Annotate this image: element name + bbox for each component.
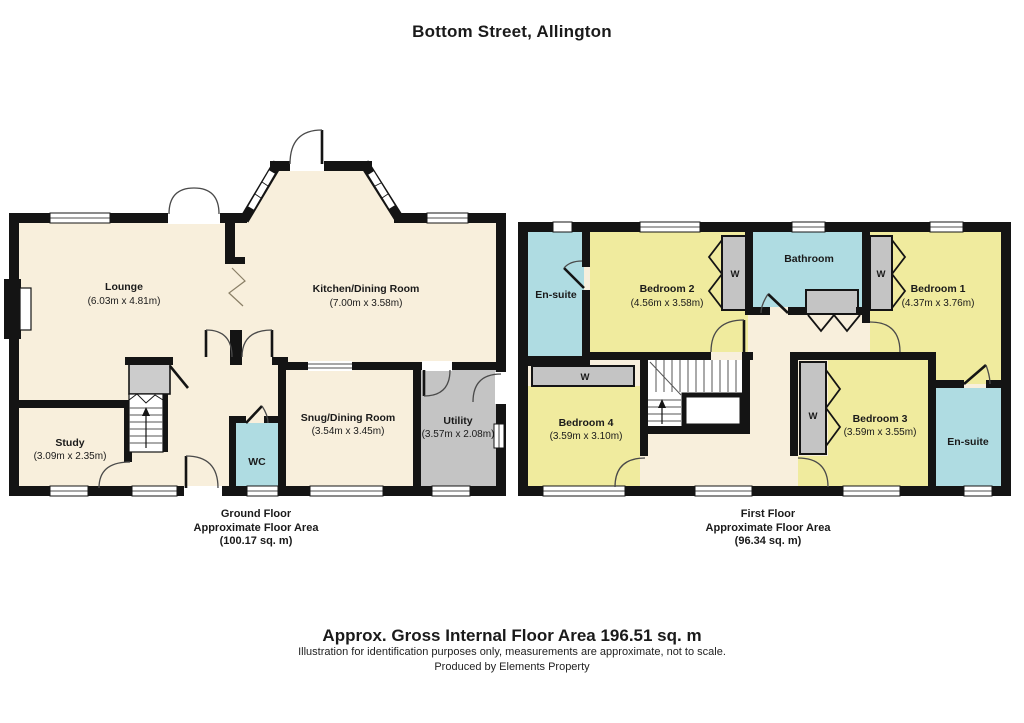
room-label-bedroom2: Bedroom 2: [640, 283, 695, 295]
room-dims-lounge: (6.03m x 4.81m): [88, 296, 161, 307]
wall: [229, 416, 236, 486]
wardrobe-label: W: [809, 411, 818, 422]
wall: [790, 352, 798, 456]
wall: [278, 362, 286, 486]
exterior-wall: [518, 222, 528, 496]
wardrobe-label: W: [877, 269, 886, 280]
chimney-recess: [20, 288, 31, 330]
wall: [230, 330, 242, 365]
room-label-snug: Snug/Dining Room: [301, 412, 396, 424]
room-dims-bedroom1: (4.37m x 3.76m): [902, 298, 975, 309]
room-wc-fill: [236, 423, 278, 486]
room-dims-utility: (3.57m x 2.08m): [422, 429, 495, 440]
room-label-kitchen: Kitchen/Dining Room: [313, 283, 420, 295]
airing-cupboard: [806, 290, 858, 314]
room-dims-bedroom3: (3.59m x 3.55m): [844, 427, 917, 438]
room-dims-bedroom4: (3.59m x 3.10m): [550, 431, 623, 442]
ground-floor-caption-line1: Ground Floor: [108, 508, 404, 522]
ground-floor-caption-line2: Approximate Floor Area: [108, 522, 404, 536]
first-floor-caption-line3: (96.34 sq. m): [620, 535, 916, 549]
exterior-wall: [1001, 222, 1011, 496]
room-label-bedroom4: Bedroom 4: [559, 417, 614, 429]
wall: [745, 227, 753, 315]
gross-area-text: Approx. Gross Internal Floor Area 196.51…: [0, 626, 1024, 646]
wall: [745, 307, 770, 315]
room-label-utility: Utility: [443, 415, 472, 427]
chimney-breast: [4, 279, 21, 339]
first-floor-caption-line2: Approximate Floor Area: [620, 522, 916, 536]
gf-staircase: [129, 394, 163, 452]
wall: [936, 380, 964, 388]
room-label-bedroom1: Bedroom 1: [911, 283, 966, 295]
first-floor-caption: First Floor Approximate Floor Area (96.3…: [620, 508, 916, 549]
floorplan-drawing: Lounge (6.03m x 4.81m) Kitchen/Dining Ro…: [0, 0, 1024, 723]
wall: [862, 227, 870, 315]
wall: [524, 356, 590, 366]
room-label-bathroom: Bathroom: [784, 253, 834, 265]
ground-floor-plan: Lounge (6.03m x 4.81m) Kitchen/Dining Ro…: [4, 130, 506, 496]
wall: [788, 307, 806, 315]
room-label-bedroom3: Bedroom 3: [853, 413, 908, 425]
room-label-study: Study: [55, 437, 84, 449]
room-dims-snug: (3.54m x 3.45m): [312, 426, 385, 437]
gf-cupboard: [129, 364, 170, 394]
ff-staircase: [648, 360, 742, 426]
ground-floor-caption: Ground Floor Approximate Floor Area (100…: [108, 508, 404, 549]
wall: [986, 380, 1001, 388]
wall: [125, 357, 173, 365]
wardrobe-label: W: [581, 372, 590, 383]
wardrobe-label: W: [731, 269, 740, 280]
wall: [14, 400, 130, 408]
first-floor-caption-line1: First Floor: [620, 508, 916, 522]
wall: [225, 257, 245, 264]
room-label-lounge: Lounge: [105, 281, 143, 293]
wall: [582, 290, 590, 356]
exterior-wall: [496, 213, 506, 496]
disclaimer-text: Illustration for identification purposes…: [0, 646, 1024, 658]
room-label-ensuite-bottom: En-suite: [947, 436, 989, 448]
wall: [264, 416, 280, 423]
room-dims-study: (3.09m x 2.35m): [34, 451, 107, 462]
wall: [862, 307, 870, 323]
room-dims-kitchen: (7.00m x 3.58m): [330, 298, 403, 309]
room-dims-bedroom2: (4.56m x 3.58m): [631, 298, 704, 309]
wall: [582, 227, 590, 267]
wall: [640, 352, 648, 456]
wall: [790, 352, 936, 360]
floorplan-page: Bottom Street, Allington: [0, 0, 1024, 723]
wall: [928, 380, 936, 486]
room-label-ensuite-top: En-suite: [535, 289, 577, 301]
produced-by-text: Produced by Elements Property: [0, 661, 1024, 673]
wardrobe-bedroom3: [800, 362, 826, 454]
wall: [413, 362, 421, 486]
wall: [229, 416, 246, 423]
ground-floor-caption-line3: (100.17 sq. m): [108, 535, 404, 549]
first-floor-plan: En-suite Bedroom 2 (4.56m x 3.58m) W Bat…: [518, 222, 1011, 496]
exterior-wall: [9, 213, 19, 496]
room-label-wc: WC: [248, 456, 266, 468]
